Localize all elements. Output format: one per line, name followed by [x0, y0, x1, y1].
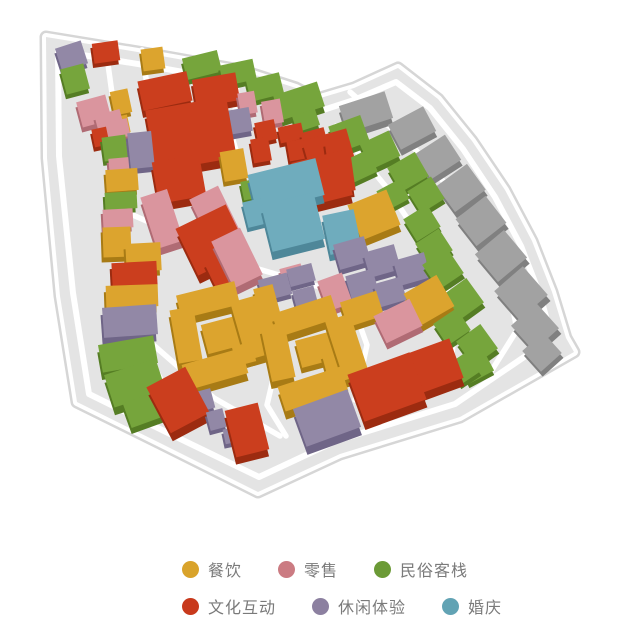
- building-culture: [90, 40, 121, 68]
- legend-row-1: 餐饮 零售 民俗客栈: [182, 557, 502, 581]
- legend-label: 婚庆: [468, 594, 502, 618]
- building-dining: [139, 47, 166, 76]
- building-roof: [101, 134, 128, 161]
- building-roof: [111, 261, 157, 287]
- culture-color-dot-icon: [182, 598, 199, 615]
- retail-color-dot-icon: [278, 561, 295, 578]
- building-roof: [220, 148, 249, 182]
- legend-item-wedding: 婚庆: [442, 594, 502, 618]
- building-roof: [92, 40, 121, 63]
- legend-label: 零售: [304, 557, 338, 581]
- folk-inn-color-dot-icon: [374, 561, 391, 578]
- village-map: [0, 0, 640, 640]
- wedding-color-dot-icon: [442, 598, 459, 615]
- building-roof: [105, 168, 138, 192]
- legend-item-folk-inn: 民俗客栈: [374, 557, 468, 581]
- building-roof: [106, 284, 159, 308]
- legend-item-dining: 餐饮: [182, 557, 242, 581]
- legend-label: 休闲体验: [338, 594, 406, 618]
- building-roof: [105, 191, 138, 210]
- legend-item-leisure: 休闲体验: [312, 594, 406, 618]
- building-roof: [103, 208, 134, 229]
- legend-item-culture: 文化互动: [182, 594, 276, 618]
- building-roof: [127, 131, 155, 169]
- leisure-color-dot-icon: [312, 598, 329, 615]
- dining-color-dot-icon: [182, 561, 199, 578]
- legend-label: 餐饮: [208, 557, 242, 581]
- legend-row-2: 文化互动 休闲体验 婚庆: [182, 594, 502, 618]
- map-legend: 餐饮 零售 民俗客栈 文化互动 休闲体验 婚庆: [182, 557, 502, 618]
- legend-label: 文化互动: [208, 594, 276, 618]
- village-map-figure: [0, 0, 640, 640]
- building-leisure: [125, 131, 155, 175]
- building-roof: [141, 47, 166, 72]
- building-roof: [102, 304, 158, 338]
- legend-item-retail: 零售: [278, 557, 338, 581]
- legend-label: 民俗客栈: [400, 557, 468, 581]
